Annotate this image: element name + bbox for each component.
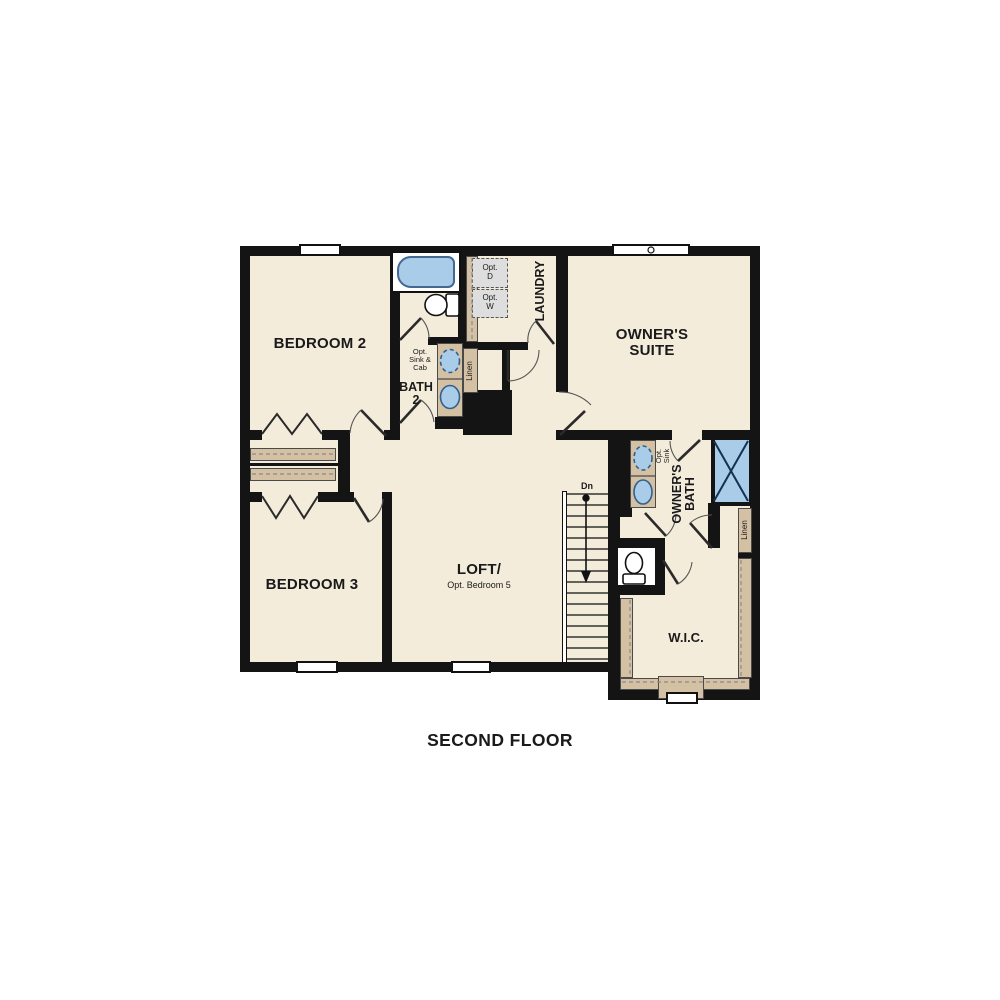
room-label-bath2: BATH 2 <box>395 380 437 408</box>
note-opt-sink-cab: Opt. Sink & Cab <box>407 346 433 374</box>
room-sublabel-loft: Opt. Bedroom 5 <box>419 580 539 591</box>
page-title: SECOND FLOOR <box>400 730 600 750</box>
note-linen-bath2: Linen <box>465 356 475 386</box>
vanity-dividers <box>437 379 656 476</box>
room-label-owners-suite: OWNER'S SUITE <box>602 326 702 360</box>
note-linen-owners: Linen <box>740 515 750 545</box>
room-label-bedroom3: BEDROOM 3 <box>242 577 382 593</box>
note-opt-dryer: Opt. D <box>481 262 499 284</box>
window-tick <box>648 247 654 253</box>
stairs-down-arrow <box>581 495 591 583</box>
note-stairs-down: Dn <box>575 481 599 492</box>
room-label-wic: W.I.C. <box>646 631 726 645</box>
room-label-loft: LOFT/ <box>419 562 539 578</box>
floor-plan-page: BEDROOM 2 BEDROOM 3 OWNER'S SUITE LOFT/ … <box>0 0 1000 1000</box>
room-label-bedroom2: BEDROOM 2 <box>250 336 390 352</box>
bifold-doors <box>262 414 322 518</box>
shower-x <box>714 441 748 501</box>
note-opt-washer: Opt. W <box>481 292 499 314</box>
room-label-laundry: LAUNDRY <box>534 256 548 326</box>
plan-linework <box>0 0 1000 1000</box>
note-opt-sink: Opt. Sink <box>653 444 673 468</box>
